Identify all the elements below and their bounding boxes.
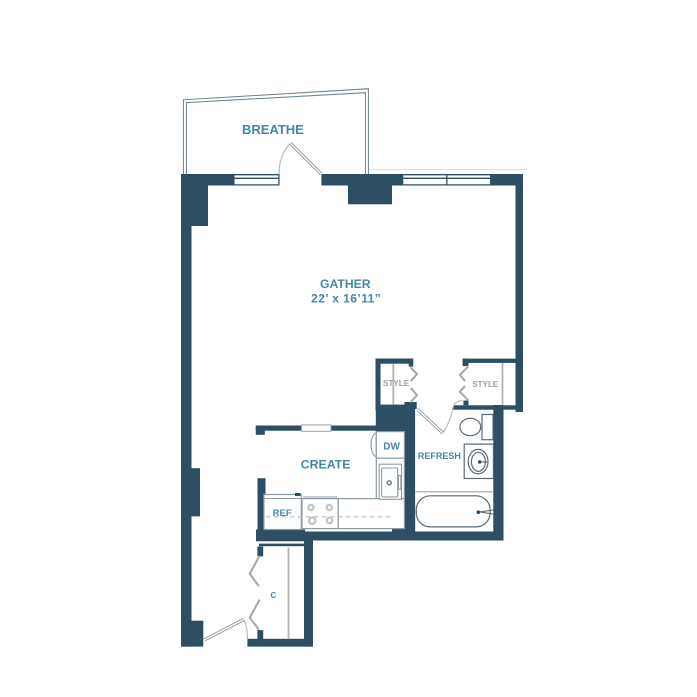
svg-text:GATHER: GATHER (320, 277, 371, 291)
svg-text:REFRESH: REFRESH (418, 451, 461, 461)
svg-text:BREATHE: BREATHE (242, 122, 304, 137)
svg-text:CREATE: CREATE (301, 458, 351, 472)
svg-text:STYLE: STYLE (472, 380, 499, 389)
svg-text:C: C (270, 591, 276, 600)
svg-text:REF: REF (273, 508, 292, 519)
svg-text:22’ x 16’11”: 22’ x 16’11” (311, 292, 381, 306)
svg-text:STYLE: STYLE (383, 379, 410, 388)
svg-text:DW: DW (383, 441, 400, 452)
